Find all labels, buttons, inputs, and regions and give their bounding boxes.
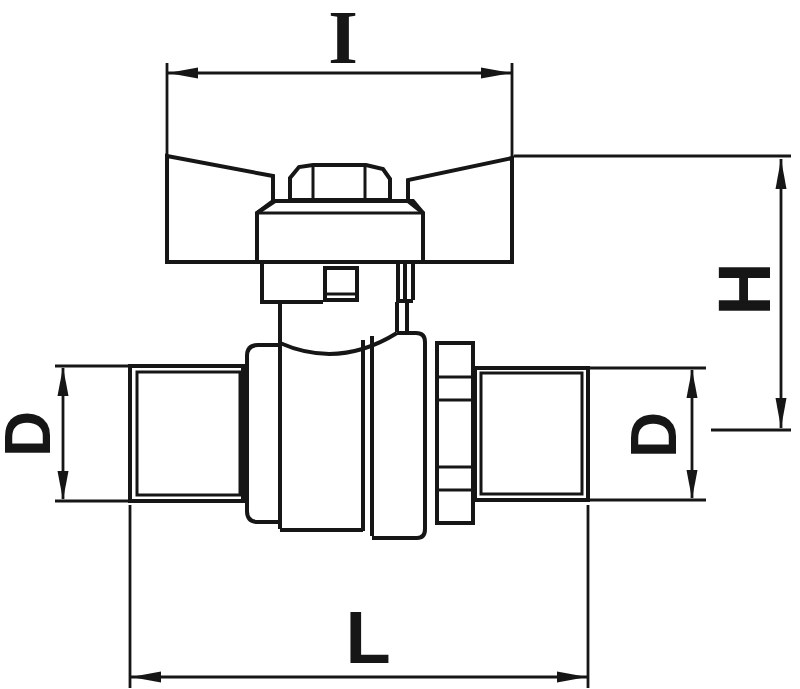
- dimension-overall-height: H: [514, 156, 791, 430]
- valve-body: [247, 333, 473, 538]
- dimension-left-diameter: D: [0, 366, 130, 501]
- right-pipe-thread-inner: [481, 373, 582, 494]
- right-pipe-outer: [475, 368, 588, 500]
- body-top-saddle-arc: [280, 333, 397, 354]
- left-pipe-outer: [130, 366, 243, 501]
- dim-L-label: L: [345, 596, 390, 679]
- dim-L-arrow-right: [557, 672, 587, 683]
- dim-L-arrow-left: [131, 672, 161, 683]
- dim-D-left-arrow-top: [58, 367, 69, 396]
- dim-D-right-arrow-top: [687, 369, 698, 398]
- valve-stem: [262, 262, 413, 354]
- dimension-overall-length: L: [130, 505, 588, 688]
- butterfly-handle: [167, 156, 512, 262]
- left-threaded-end: [130, 366, 243, 501]
- dim-I-arrow-right: [481, 68, 511, 79]
- handle-hex-nut: [290, 165, 390, 200]
- right-threaded-end: [475, 368, 588, 500]
- dim-D-left-label: D: [0, 411, 64, 457]
- body-mid-joint-lines: [363, 336, 372, 536]
- valve-technical-drawing: I H D D: [0, 0, 800, 689]
- dim-I-arrow-left: [168, 68, 198, 79]
- body-left-cap: [247, 345, 280, 522]
- valve-technical-drawing-page: I H D D: [0, 0, 800, 689]
- left-pipe-thread-inner: [137, 372, 240, 495]
- dim-D-left-arrow-bottom: [58, 471, 69, 500]
- dim-H-label: H: [703, 262, 786, 315]
- handle-hub-housing: [257, 201, 423, 262]
- dimension-right-diameter: D: [588, 368, 706, 500]
- body-barrel-right: [372, 333, 425, 538]
- dim-I-label: I: [328, 0, 358, 79]
- dim-D-right-arrow-bottom: [687, 470, 698, 499]
- hex-nut-facet-lines: [313, 165, 365, 200]
- packing-gland-facet-lines: [437, 377, 473, 490]
- stem-skirt-right-ribs: [398, 262, 413, 302]
- packing-gland-nut: [437, 343, 473, 523]
- stem-skirt-left: [262, 262, 323, 302]
- stem-neck-right: [397, 302, 407, 332]
- dim-H-arrow-bottom: [776, 398, 787, 428]
- dim-H-arrow-top: [776, 159, 787, 189]
- dim-D-right-label: D: [618, 412, 690, 458]
- dimension-handle-width: I: [167, 0, 512, 158]
